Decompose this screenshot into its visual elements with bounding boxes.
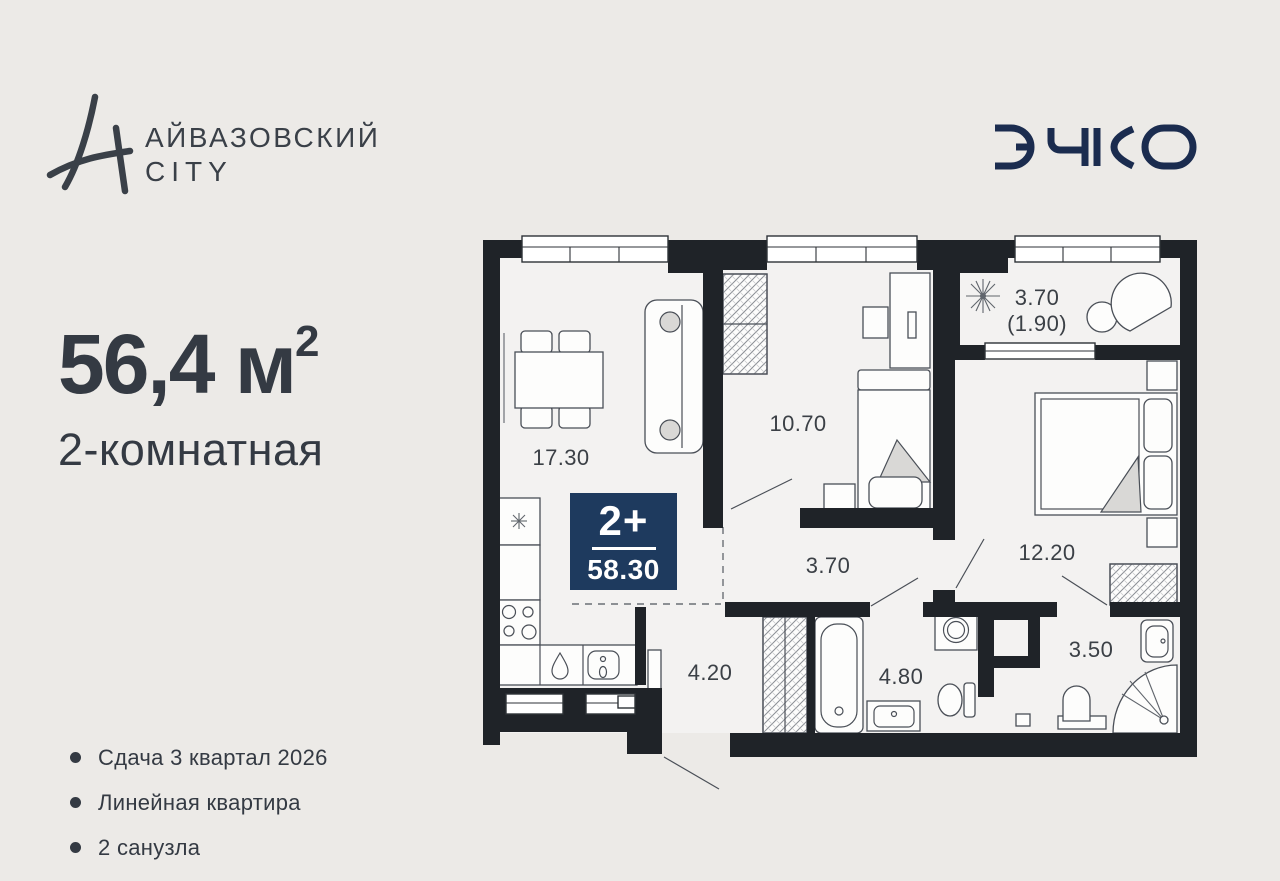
bathroom-sink xyxy=(867,701,920,731)
bullet-icon xyxy=(70,842,81,853)
entry-door-swing xyxy=(664,757,719,789)
window xyxy=(1015,236,1160,262)
badge-divider xyxy=(592,547,656,550)
room-label-living-kitchen: 17.30 xyxy=(532,445,589,471)
apartment-area: 56,4 м2 xyxy=(58,316,319,413)
room-label-bathroom-1: 4.80 xyxy=(879,664,923,690)
room-label-bedroom-1: 10.70 xyxy=(769,411,826,437)
dining-table xyxy=(515,331,603,428)
balcony-area-reduced: (1.90) xyxy=(1007,311,1067,337)
room-label-bedroom-2: 12.20 xyxy=(1018,540,1075,566)
area-superscript: 2 xyxy=(295,317,319,366)
developer-logo-icon xyxy=(995,128,1193,166)
nightstand xyxy=(1147,518,1177,547)
brand-name-city: CITY xyxy=(145,156,233,188)
single-bed xyxy=(858,370,930,510)
balcony-area: 3.70 xyxy=(1007,285,1067,311)
monitor xyxy=(908,312,916,338)
stove xyxy=(498,600,540,645)
feature-text: Линейная квартира xyxy=(98,790,301,816)
feature-text: Сдача 3 квартал 2026 xyxy=(98,745,328,771)
sofa xyxy=(645,300,703,453)
wardrobe-bedroom-2 xyxy=(1110,564,1177,605)
feature-item: 2 санузла xyxy=(70,836,328,859)
room-label-hall: 3.70 xyxy=(806,553,850,579)
feature-item: Сдача 3 квартал 2026 xyxy=(70,746,328,769)
kitchen-window xyxy=(586,694,635,714)
fridge xyxy=(498,498,540,545)
badge-total-area: 58.30 xyxy=(587,556,660,584)
plant-icon xyxy=(966,279,1000,313)
kitchen-counter xyxy=(498,645,637,685)
double-bed xyxy=(1035,393,1177,515)
snowflake-icon xyxy=(511,513,527,529)
bathtub xyxy=(815,617,863,733)
wardrobe-hallway xyxy=(763,617,807,733)
room-label-bathroom-2: 3.50 xyxy=(1069,637,1113,663)
badge-rooms: 2+ xyxy=(599,500,649,542)
pillow xyxy=(1144,399,1172,452)
bathroom-2-sink xyxy=(1141,620,1173,662)
window xyxy=(522,236,668,262)
apartment-badge: 2+ 58.30 xyxy=(570,493,677,590)
plumbing-shaft-detail xyxy=(1016,714,1030,726)
room-label-balcony: 3.70 (1.90) xyxy=(1007,285,1067,337)
brand-mark-icon xyxy=(50,97,130,191)
bullet-icon xyxy=(70,752,81,763)
pillow xyxy=(1144,456,1172,509)
features-list: Сдача 3 квартал 2026 Линейная квартира 2… xyxy=(70,746,328,881)
apartment-type: 2-комнатная xyxy=(58,424,323,476)
feature-item: Линейная квартира xyxy=(70,791,328,814)
area-value: 56,4 м xyxy=(58,317,295,411)
balcony-window xyxy=(985,343,1095,359)
wardrobe-bedroom-1 xyxy=(723,274,767,374)
brand-name: АЙВАЗОВСКИЙ xyxy=(145,122,380,154)
kitchen-window xyxy=(506,694,563,714)
bullet-icon xyxy=(70,797,81,808)
toilet xyxy=(938,683,975,717)
room-label-hallway: 4.20 xyxy=(688,660,732,686)
nightstand xyxy=(1147,361,1177,390)
feature-text: 2 санузла xyxy=(98,835,200,861)
window xyxy=(767,236,917,262)
kitchen-cabinet xyxy=(498,545,540,600)
